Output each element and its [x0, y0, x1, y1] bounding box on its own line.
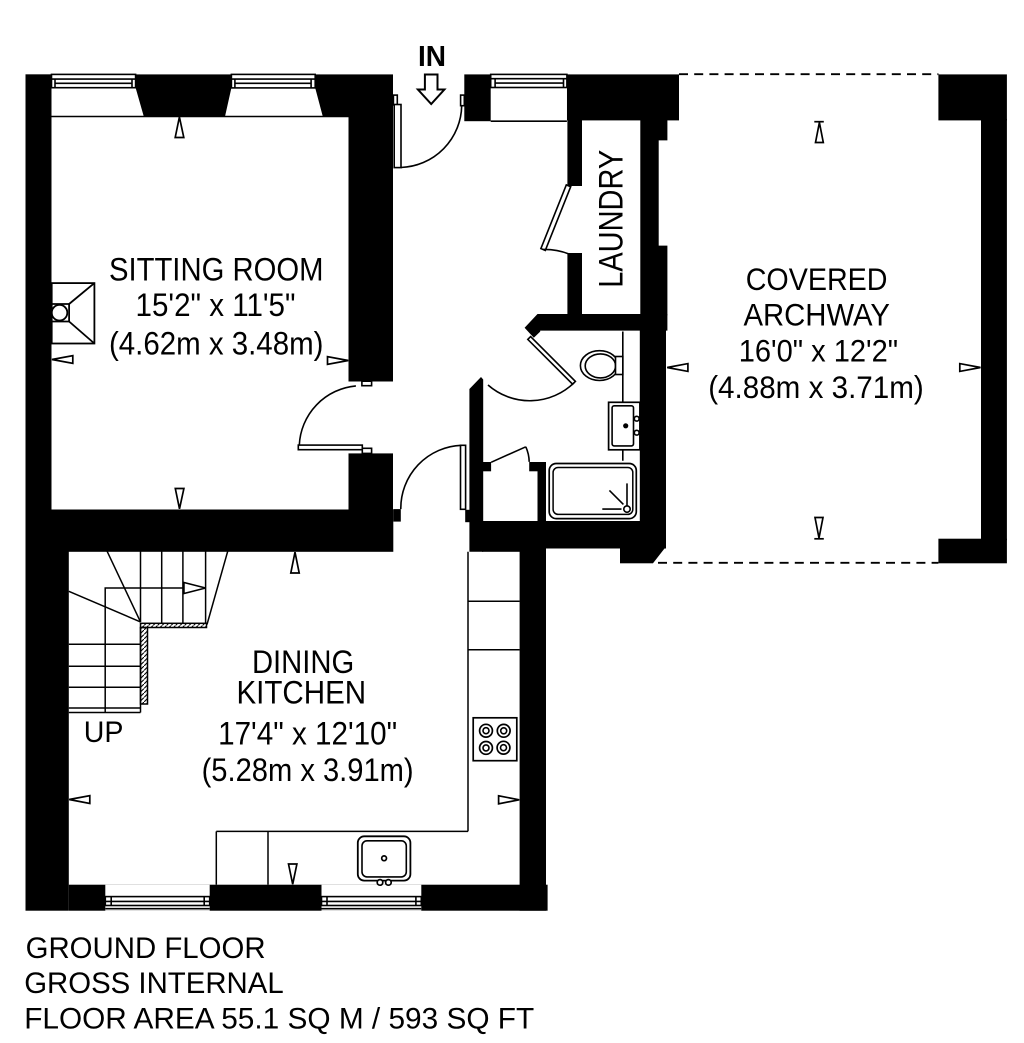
svg-text:COVERED: COVERED	[746, 261, 888, 297]
svg-text:UP: UP	[84, 716, 124, 749]
svg-text:(4.62m x 3.48m): (4.62m x 3.48m)	[109, 325, 324, 361]
svg-text:SITTING ROOM: SITTING ROOM	[109, 252, 324, 288]
svg-text:LAUNDRY: LAUNDRY	[592, 150, 630, 288]
svg-text:16'0" x 12'2": 16'0" x 12'2"	[739, 333, 898, 369]
svg-text:17'4" x 12'10": 17'4" x 12'10"	[218, 715, 397, 751]
svg-text:GROSS INTERNAL: GROSS INTERNAL	[24, 967, 284, 1000]
svg-text:GROUND FLOOR: GROUND FLOOR	[26, 932, 266, 965]
svg-text:IN: IN	[418, 41, 446, 73]
svg-text:KITCHEN: KITCHEN	[236, 675, 366, 711]
svg-text:(5.28m x 3.91m): (5.28m x 3.91m)	[202, 752, 414, 788]
svg-text:15'2" x 11'5": 15'2" x 11'5"	[136, 287, 296, 323]
svg-text:FLOOR AREA 55.1 SQ M / 593 SQ: FLOOR AREA 55.1 SQ M / 593 SQ FT	[24, 1002, 534, 1035]
svg-text:(4.88m x 3.71m): (4.88m x 3.71m)	[708, 369, 924, 405]
svg-text:ARCHWAY: ARCHWAY	[743, 296, 890, 332]
